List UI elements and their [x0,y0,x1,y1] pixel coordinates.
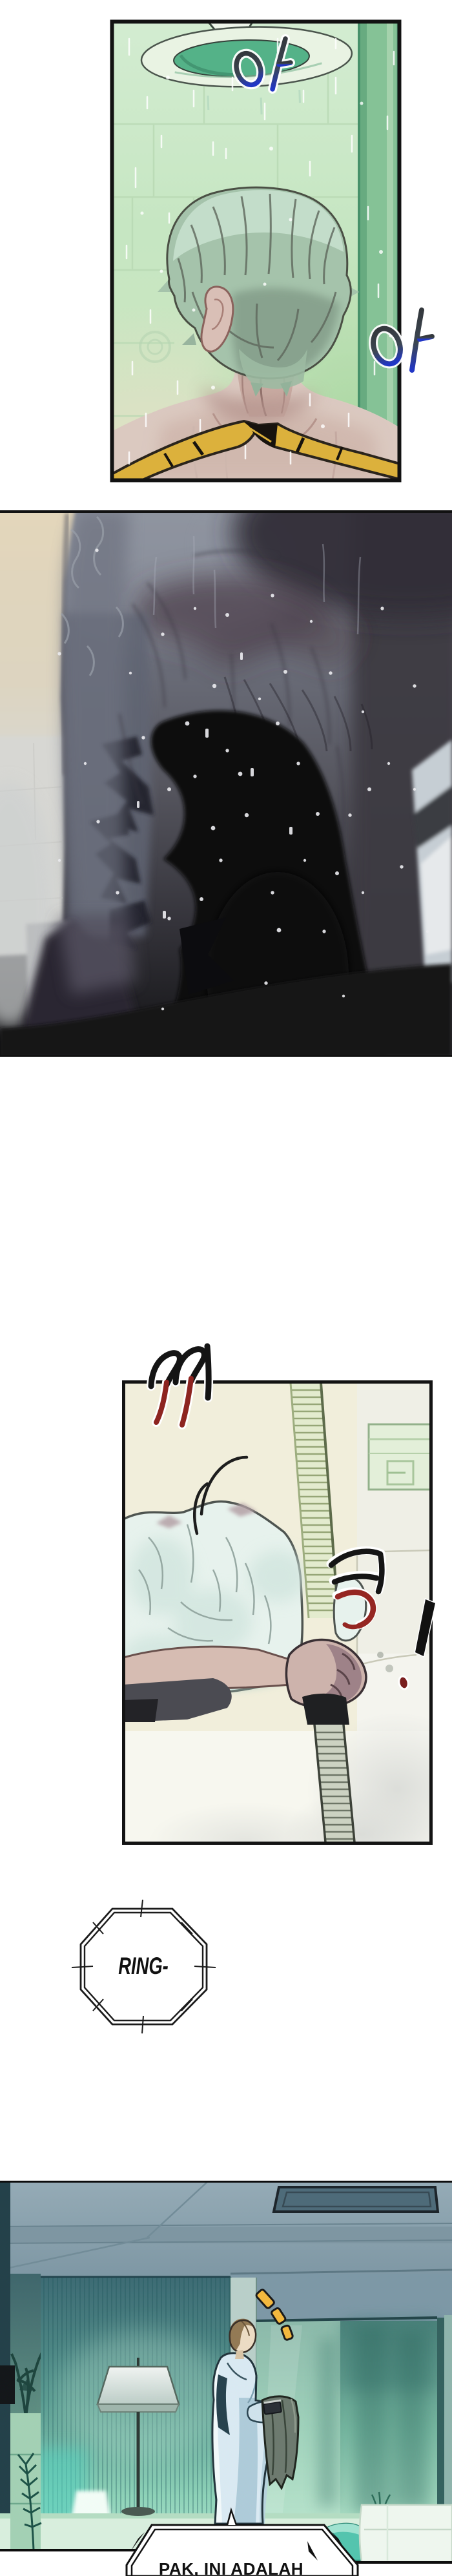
svg-text:PAK, INI ADALAH: PAK, INI ADALAH [159,2559,303,2576]
svg-text:RING-: RING- [118,1953,169,1979]
